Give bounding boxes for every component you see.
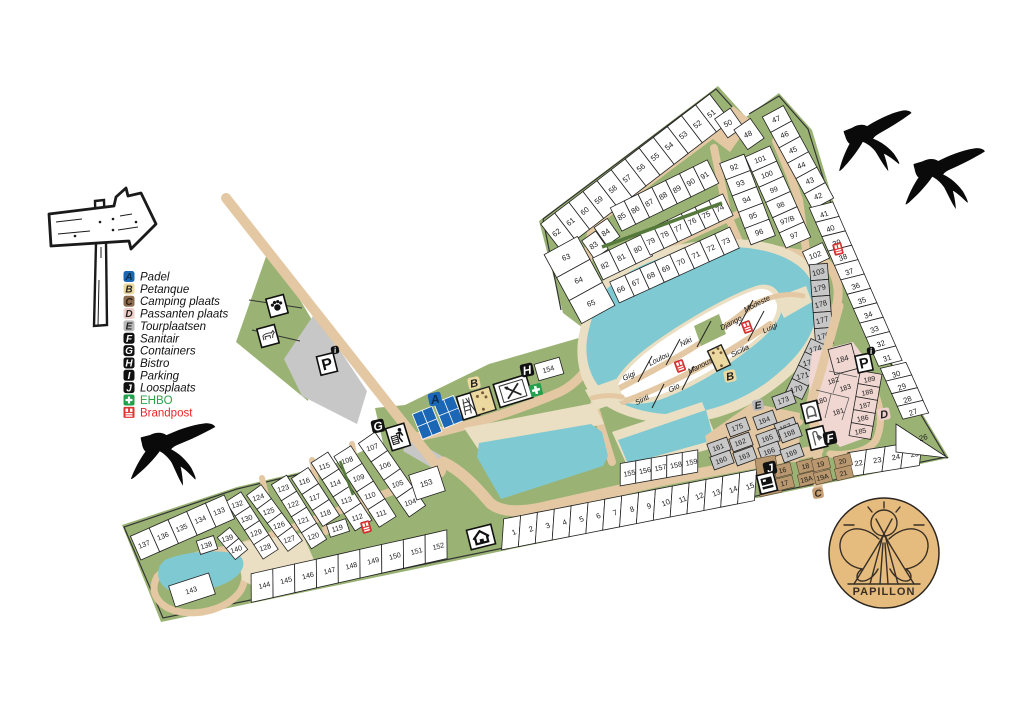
svg-text:Bistro: Bistro [140, 358, 170, 370]
svg-text:C: C [125, 297, 133, 308]
svg-text:Padel: Padel [140, 272, 170, 284]
svg-text:D: D [125, 309, 132, 320]
svg-text:G: G [125, 346, 133, 357]
svg-text:Loosplaats: Loosplaats [140, 383, 196, 395]
svg-text:J: J [126, 383, 132, 394]
svg-text:H: H [125, 359, 133, 370]
svg-text:PAPILLON: PAPILLON [853, 586, 916, 598]
svg-text:Sanitair: Sanitair [140, 333, 180, 345]
svg-text:EHBO: EHBO [140, 395, 173, 407]
svg-text:Containers: Containers [140, 346, 196, 358]
svg-text:F: F [126, 334, 133, 345]
svg-text:Brandpost: Brandpost [140, 407, 193, 419]
svg-text:A: A [124, 272, 132, 283]
svg-text:B: B [125, 284, 132, 295]
svg-text:Passanten plaats: Passanten plaats [140, 309, 228, 321]
svg-text:23: 23 [872, 455, 882, 465]
svg-text:22: 22 [854, 458, 864, 468]
svg-text:Tourplaatsen: Tourplaatsen [140, 321, 206, 333]
svg-text:24: 24 [891, 452, 901, 462]
svg-text:Camping plaats: Camping plaats [140, 296, 220, 308]
svg-text:Parking: Parking [140, 370, 180, 382]
svg-text:I: I [128, 371, 131, 382]
svg-text:E: E [126, 322, 133, 333]
svg-text:Petanque: Petanque [140, 284, 189, 296]
